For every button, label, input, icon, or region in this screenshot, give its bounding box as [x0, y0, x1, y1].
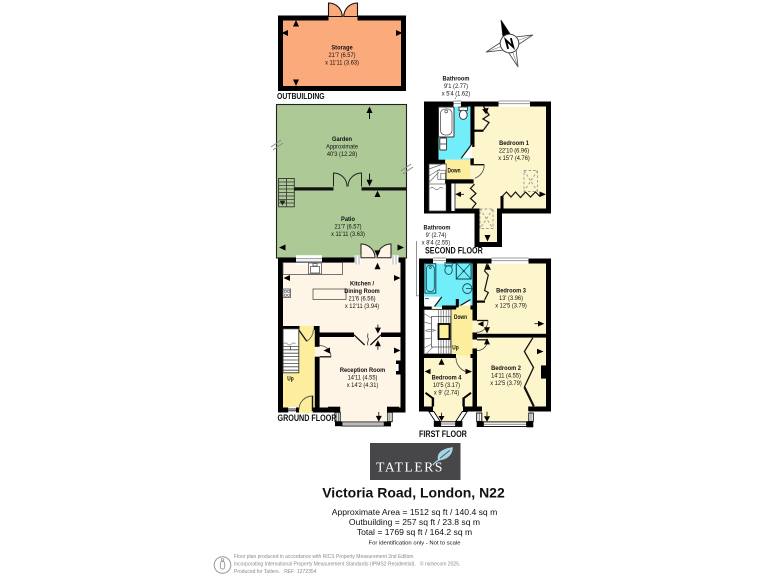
svg-text:Total = 1769 sq ft / 164.2 sq: Total = 1769 sq ft / 164.2 sq m	[357, 527, 472, 537]
svg-text:Bathroom: Bathroom	[443, 75, 470, 82]
svg-text:Victoria Road, London, N22: Victoria Road, London, N22	[322, 485, 505, 501]
svg-text:21'6 (6.56): 21'6 (6.56)	[348, 295, 375, 302]
svg-text:Produced for Tatlers. REF: 1: Produced for Tatlers. REF: 1272354	[234, 569, 317, 575]
svg-text:x 12'11 (3.94): x 12'11 (3.94)	[345, 303, 379, 310]
svg-text:Bedroom 3: Bedroom 3	[496, 287, 526, 294]
svg-text:x 14'2 (4.31): x 14'2 (4.31)	[347, 382, 379, 389]
svg-text:21'7 (6.57): 21'7 (6.57)	[334, 223, 361, 230]
svg-text:10'5 (3.17): 10'5 (3.17)	[433, 382, 460, 389]
svg-text:Garden: Garden	[332, 136, 352, 143]
svg-text:Kitchen /: Kitchen /	[350, 280, 374, 287]
svg-text:Incorporating International Pr: Incorporating International Property Mea…	[234, 560, 460, 567]
svg-text:TATLERS: TATLERS	[376, 460, 444, 475]
svg-text:Up: Up	[287, 376, 294, 383]
svg-text:Down: Down	[447, 168, 460, 175]
svg-text:Approximate: Approximate	[326, 143, 359, 150]
svg-text:14'11 (4.55): 14'11 (4.55)	[491, 372, 521, 379]
svg-text:13' (3.96): 13' (3.96)	[499, 295, 523, 302]
svg-text:x 11'11 (3.63): x 11'11 (3.63)	[331, 231, 365, 238]
svg-text:x 15'7 (4.76): x 15'7 (4.76)	[498, 155, 530, 162]
svg-text:Bedroom 4: Bedroom 4	[432, 374, 462, 381]
svg-text:Dining Room: Dining Room	[344, 288, 380, 295]
svg-text:9' (2.74): 9' (2.74)	[426, 232, 447, 239]
svg-text:x 5'4 (1.62): x 5'4 (1.62)	[442, 90, 470, 97]
svg-text:Reception Room: Reception Room	[340, 367, 386, 374]
svg-text:Patio: Patio	[341, 216, 355, 223]
svg-text:22'10 (6.96): 22'10 (6.96)	[499, 147, 529, 154]
svg-text:Floor plan produced in accorda: Floor plan produced in accordance with R…	[234, 554, 415, 560]
svg-text:x 12'5 (3.79): x 12'5 (3.79)	[490, 380, 522, 387]
svg-text:9'1 (2.77): 9'1 (2.77)	[444, 83, 468, 90]
svg-text:SECOND FLOOR: SECOND FLOOR	[425, 246, 483, 256]
svg-text:21'7 (6.57): 21'7 (6.57)	[328, 52, 355, 59]
svg-text:Up: Up	[452, 345, 459, 352]
svg-text:14'11 (4.55): 14'11 (4.55)	[348, 374, 378, 381]
svg-text:Bedroom 1: Bedroom 1	[499, 140, 529, 147]
svg-text:x 12'5 (3.79): x 12'5 (3.79)	[495, 302, 527, 309]
svg-text:Bedroom 2: Bedroom 2	[491, 365, 521, 372]
svg-text:Storage: Storage	[331, 44, 353, 51]
svg-text:40'3 (12.28): 40'3 (12.28)	[327, 151, 357, 158]
svg-text:Outbuilding = 257 sq ft / 23.8: Outbuilding = 257 sq ft / 23.8 sq m	[349, 517, 480, 527]
svg-text:x 9' (2.74): x 9' (2.74)	[434, 389, 459, 396]
svg-text:FIRST FLOOR: FIRST FLOOR	[419, 429, 467, 439]
svg-text:x 11'11 (3.63): x 11'11 (3.63)	[325, 59, 359, 66]
svg-text:Approximate Area = 1512 sq ft: Approximate Area = 1512 sq ft / 140.4 sq…	[332, 507, 498, 517]
svg-text:OUTBUILDING: OUTBUILDING	[277, 91, 325, 101]
svg-text:GROUND FLOOR: GROUND FLOOR	[278, 413, 337, 423]
svg-text:For identification only - Not: For identification only - Not to scale	[368, 541, 461, 547]
svg-text:Down: Down	[454, 315, 467, 322]
svg-text:Bathroom: Bathroom	[424, 224, 451, 231]
